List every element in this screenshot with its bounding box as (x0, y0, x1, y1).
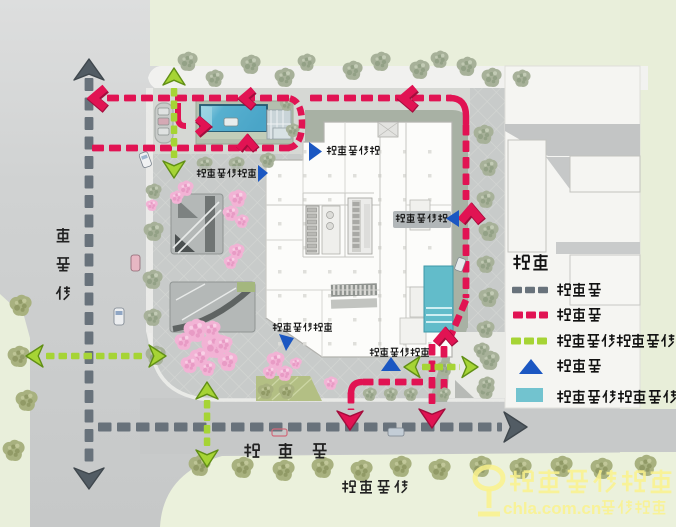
svg-text:chla.com.cn: chla.com.cn (503, 499, 601, 518)
